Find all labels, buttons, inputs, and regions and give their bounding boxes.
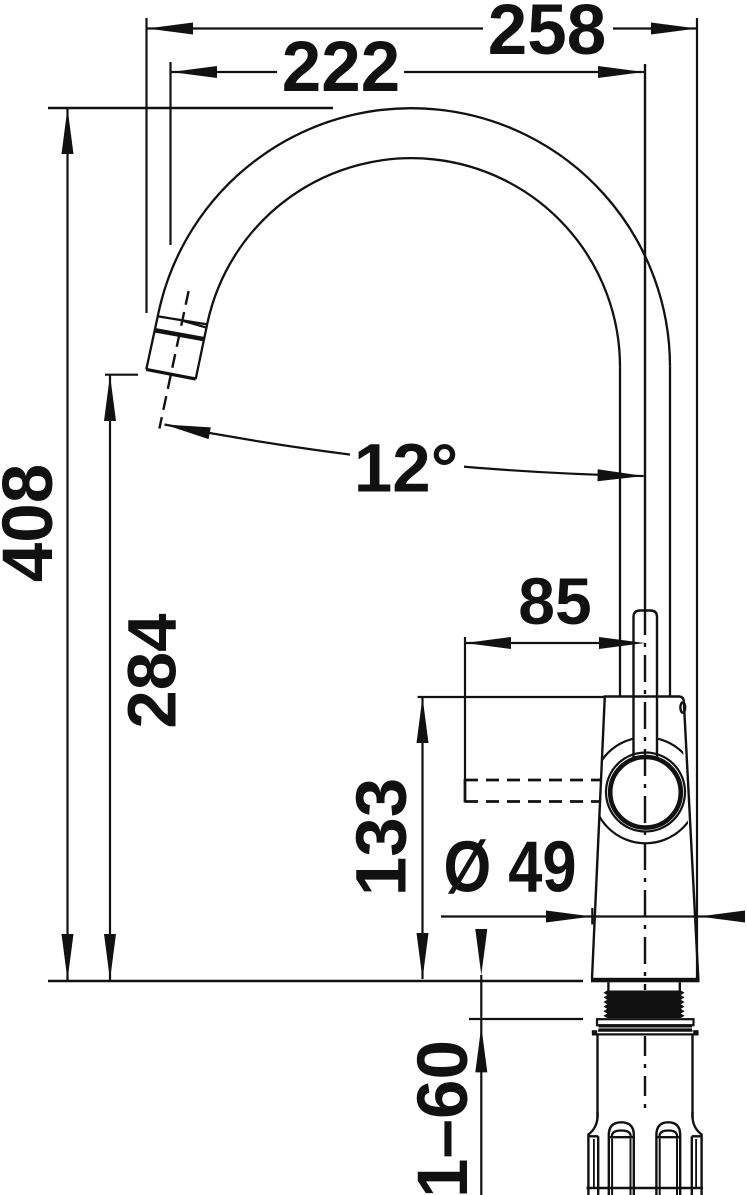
svg-text:85: 85: [518, 564, 591, 638]
svg-text:133: 133: [343, 778, 422, 896]
svg-text:Ø 49: Ø 49: [444, 828, 577, 908]
svg-text:1–60: 1–60: [404, 1040, 483, 1195]
svg-text:12°: 12°: [354, 430, 458, 507]
svg-text:222: 222: [282, 28, 400, 107]
svg-text:408: 408: [0, 464, 68, 582]
svg-text:258: 258: [488, 0, 606, 70]
svg-text:284: 284: [114, 613, 191, 728]
